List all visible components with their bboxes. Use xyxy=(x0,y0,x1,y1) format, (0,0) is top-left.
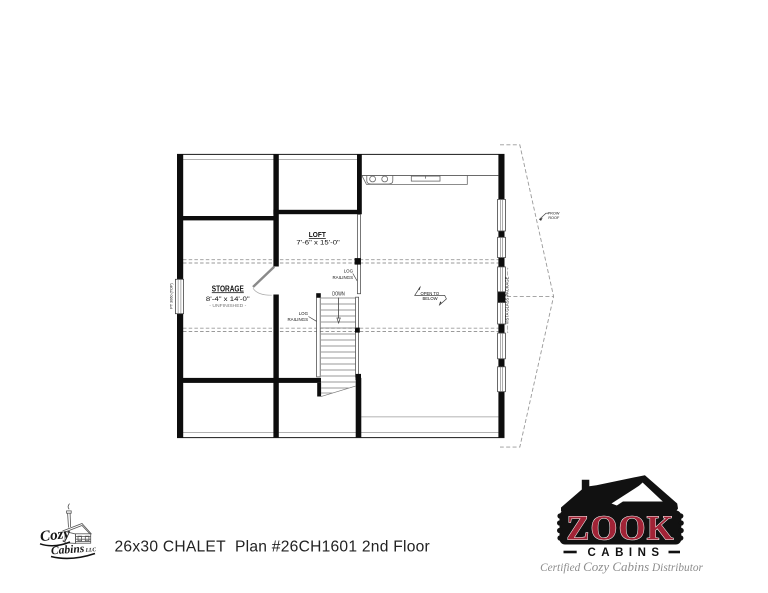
svg-text:PT 3060 (TOP): PT 3060 (TOP) xyxy=(170,282,174,308)
svg-text:Certified Cozy Cabins Distribu: Certified Cozy Cabins Distributor xyxy=(540,559,703,574)
svg-text:RAILINGS: RAILINGS xyxy=(333,275,354,280)
svg-text:ROOF: ROOF xyxy=(548,216,560,220)
svg-text:RAILINGS: RAILINGS xyxy=(288,317,309,322)
svg-text:BELOW: BELOW xyxy=(422,296,437,301)
svg-text:STORAGE: STORAGE xyxy=(212,284,244,293)
svg-text:LOFT: LOFT xyxy=(309,230,326,239)
svg-text:26x30 CHALET Plan #26CH1601 2: 26x30 CHALET Plan #26CH1601 2nd Floor xyxy=(115,539,431,556)
svg-text:ZOOK: ZOOK xyxy=(566,510,674,548)
svg-text:LOG: LOG xyxy=(344,269,354,274)
svg-text:CABINS: CABINS xyxy=(587,547,664,559)
svg-text:8'-4" x 14'-0": 8'-4" x 14'-0" xyxy=(206,296,250,303)
svg-text:←— VISTA GLASS PACKAGE —→: ←— VISTA GLASS PACKAGE —→ xyxy=(505,267,510,334)
svg-text:LOG: LOG xyxy=(299,311,309,316)
svg-text:7'-6" x 15'-0": 7'-6" x 15'-0" xyxy=(296,240,340,247)
svg-text:DOWN: DOWN xyxy=(332,291,345,297)
svg-text:- UNFINISHED -: - UNFINISHED - xyxy=(209,303,247,308)
